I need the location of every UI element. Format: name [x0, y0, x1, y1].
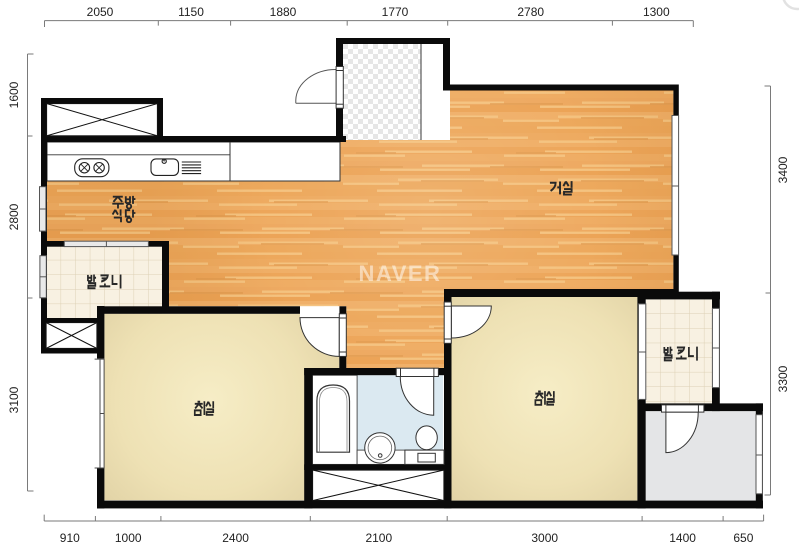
svg-text:2400: 2400	[222, 531, 249, 545]
svg-text:910: 910	[60, 531, 80, 545]
svg-text:1150: 1150	[178, 5, 204, 19]
svg-text:3000: 3000	[531, 531, 558, 545]
svg-text:1770: 1770	[382, 5, 409, 19]
svg-text:2100: 2100	[365, 531, 392, 545]
svg-text:1300: 1300	[643, 5, 670, 19]
svg-text:650: 650	[733, 531, 753, 545]
svg-text:2780: 2780	[517, 5, 544, 19]
svg-text:1600: 1600	[7, 81, 21, 108]
svg-text:1000: 1000	[115, 531, 142, 545]
svg-text:2050: 2050	[87, 5, 114, 19]
svg-text:1880: 1880	[270, 5, 297, 19]
svg-text:NAVER: NAVER	[359, 261, 442, 286]
svg-text:2800: 2800	[7, 203, 21, 230]
svg-text:1400: 1400	[669, 531, 696, 545]
svg-text:3100: 3100	[7, 386, 21, 413]
svg-text:3400: 3400	[776, 156, 790, 183]
svg-text:3300: 3300	[776, 365, 790, 392]
